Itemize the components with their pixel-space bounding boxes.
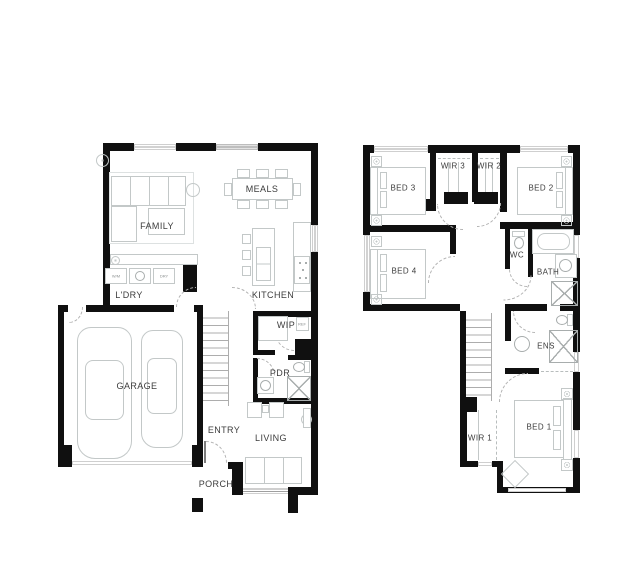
room-label-bed1: BED 1 — [526, 423, 551, 432]
window — [312, 225, 318, 252]
dining-chair — [224, 183, 232, 196]
door-arc — [176, 287, 196, 307]
armchair — [247, 402, 262, 418]
bathtub-inner — [537, 233, 570, 250]
door-arc — [206, 441, 227, 463]
wall — [363, 145, 374, 153]
wall — [460, 407, 467, 463]
sofa — [111, 176, 186, 206]
wall — [505, 229, 510, 269]
basin — [260, 380, 271, 391]
corner-symbol — [561, 388, 573, 400]
room-label-ens: ENS — [537, 342, 555, 351]
window — [134, 144, 176, 150]
pillow — [380, 254, 387, 272]
wall — [450, 232, 456, 254]
dining-chair — [237, 200, 250, 209]
tv-unit — [303, 408, 311, 428]
basin — [514, 336, 530, 352]
door-arc — [513, 311, 535, 333]
door-arc — [499, 373, 528, 402]
corner-symbol — [371, 215, 382, 226]
room-label-laundry: L'DRY — [115, 290, 143, 300]
wall — [232, 465, 243, 495]
corner-symbol — [371, 236, 382, 247]
opening — [541, 371, 573, 372]
dining-chair — [293, 183, 301, 196]
sofa — [111, 206, 137, 242]
corner-symbol — [561, 459, 573, 471]
pillow — [553, 430, 561, 450]
room-label-bed2: BED 2 — [528, 184, 553, 193]
sofa — [245, 457, 302, 484]
door-arc — [504, 276, 532, 301]
window — [243, 487, 288, 494]
room-label-family: FAMILY — [140, 221, 174, 231]
room-label-pdr: PDR — [270, 368, 290, 378]
room-label-wir1: WIR 1 — [468, 434, 492, 443]
trough-bowl — [135, 271, 145, 281]
ceiling-symbol — [96, 154, 109, 167]
pillow — [556, 191, 563, 208]
room-label-meals: MEALS — [246, 184, 279, 194]
room-label-porch: PORCH — [199, 479, 234, 489]
bench — [110, 254, 198, 265]
wall — [363, 304, 460, 311]
bar-stool — [242, 266, 251, 276]
bed-head — [565, 167, 573, 215]
window — [520, 146, 568, 152]
wall — [460, 461, 478, 467]
room-label-bath: BATH — [537, 268, 559, 277]
window — [374, 146, 428, 152]
appliance-label-washer: W/M — [112, 274, 120, 279]
wall — [86, 305, 174, 312]
wall — [295, 339, 311, 355]
wall — [58, 305, 64, 467]
wall — [103, 143, 134, 151]
wall — [425, 199, 436, 211]
toilet — [514, 237, 524, 249]
toilet — [293, 362, 305, 372]
wall — [505, 304, 547, 311]
stairs — [203, 311, 229, 406]
corner-symbol — [371, 294, 382, 305]
side-table — [262, 405, 269, 413]
toilet — [556, 315, 568, 325]
wall — [573, 372, 580, 430]
wall — [568, 145, 580, 153]
room-label-entry: ENTRY — [208, 425, 240, 435]
room-label-bed3: BED 3 — [390, 184, 415, 193]
pillow — [556, 172, 563, 189]
garage-door — [72, 461, 192, 465]
bed-head — [563, 398, 572, 460]
pillow — [380, 172, 387, 189]
armchair — [269, 402, 284, 418]
wall — [311, 403, 318, 490]
corner-symbol — [561, 215, 572, 226]
pillow — [553, 406, 561, 426]
armchair — [501, 460, 529, 488]
wall — [444, 192, 468, 204]
ceiling-symbol — [111, 256, 120, 265]
corner-symbol — [371, 156, 382, 167]
floor-plan-canvas: FAMILY MEALS KITCHEN L'DRY WIP PDR GARAG… — [0, 0, 639, 572]
room-label-kitchen: KITCHEN — [252, 290, 294, 300]
wall — [430, 153, 436, 202]
pillow — [380, 274, 387, 292]
wall — [311, 358, 318, 403]
dining-chair — [256, 200, 269, 209]
window — [216, 144, 258, 150]
side-table — [186, 183, 200, 197]
window — [508, 488, 566, 492]
dining-chair — [237, 169, 250, 178]
door-arc — [428, 256, 455, 283]
window — [478, 462, 492, 466]
wall — [258, 143, 318, 151]
wall — [288, 355, 311, 360]
basin — [559, 259, 572, 272]
wall — [363, 225, 456, 232]
wall — [428, 145, 520, 153]
cooktop — [294, 256, 310, 284]
robe-shelf — [480, 158, 499, 159]
window — [574, 430, 579, 458]
pillow — [380, 191, 387, 208]
dining-chair — [275, 169, 288, 178]
door-arc — [69, 307, 83, 323]
room-label-wip: WIP — [277, 320, 295, 330]
bar-stool — [242, 250, 251, 260]
wall — [363, 153, 370, 235]
room-label-wir2: WIR 2 — [477, 162, 501, 171]
dining-chair — [275, 200, 288, 209]
room-label-wc: WC — [510, 251, 524, 260]
door-arc — [477, 203, 501, 227]
wall — [253, 350, 275, 355]
room-label-wir3: WIR 3 — [441, 162, 465, 171]
shower — [551, 281, 578, 306]
wall — [311, 252, 318, 358]
appliance-label-fridge: REF — [298, 322, 306, 327]
island-sink — [256, 247, 271, 281]
room-label-bed4: BED 4 — [391, 267, 416, 276]
wall — [505, 311, 511, 341]
appliance-label-dryer: DRY — [160, 274, 168, 279]
stairs — [466, 313, 492, 401]
wall — [288, 487, 298, 513]
wall — [311, 151, 318, 225]
bar-stool — [242, 234, 251, 244]
room-label-living: LIVING — [255, 433, 287, 443]
wall — [58, 445, 72, 467]
wall — [176, 143, 216, 151]
robe-front — [496, 410, 497, 460]
dining-chair — [256, 169, 269, 178]
porch-post — [192, 498, 203, 512]
corner-symbol — [561, 156, 572, 167]
robe-shelf — [438, 158, 470, 159]
room-label-garage: GARAGE — [117, 381, 158, 391]
linen-shower-box — [287, 376, 311, 401]
